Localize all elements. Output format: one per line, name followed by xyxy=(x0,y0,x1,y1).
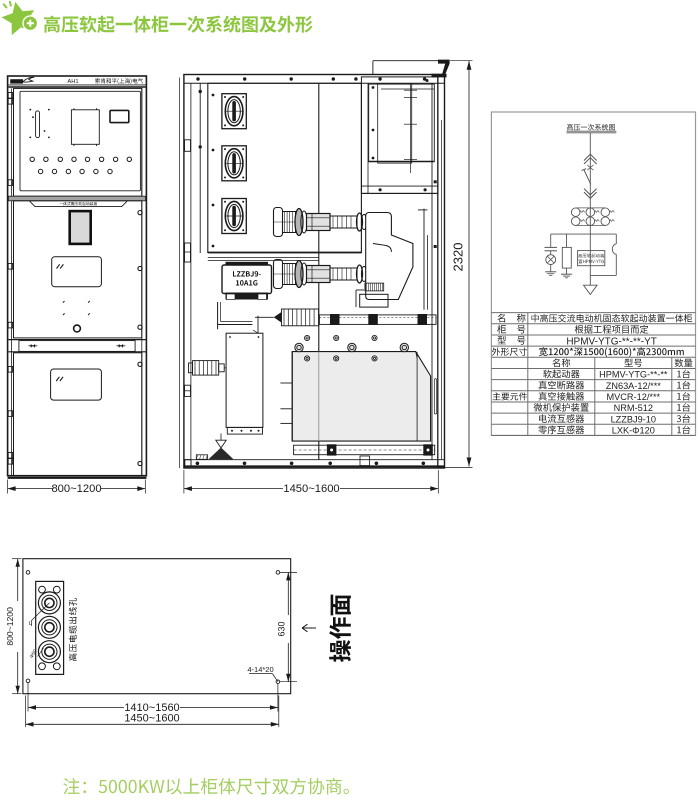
svg-text:LXK-Φ120: LXK-Φ120 xyxy=(612,426,655,436)
svg-text:AH1: AH1 xyxy=(67,79,78,85)
svg-text:MVCR-12/***: MVCR-12/*** xyxy=(606,392,660,402)
svg-text:800~1200: 800~1200 xyxy=(5,607,15,646)
svg-text:4-14*20: 4-14*20 xyxy=(247,665,273,674)
svg-text:2320: 2320 xyxy=(451,243,466,272)
svg-text:L: L xyxy=(29,621,32,627)
svg-text:ZN63A-12/***: ZN63A-12/*** xyxy=(606,381,662,391)
svg-text:HPMV-YTG-**-**-YT: HPMV-YTG-**-**-YT xyxy=(566,336,657,347)
svg-text:LZZBJ9-10: LZZBJ9-10 xyxy=(611,414,656,424)
svg-text:630: 630 xyxy=(277,621,287,636)
svg-text:1450~1600: 1450~1600 xyxy=(124,712,179,724)
svg-text:800~1200: 800~1200 xyxy=(51,483,101,495)
svg-text:NRM-512: NRM-512 xyxy=(614,403,653,413)
svg-text:HPMV-YTG-**-**: HPMV-YTG-**-** xyxy=(599,370,668,380)
svg-text:1450~1600: 1450~1600 xyxy=(283,483,339,495)
